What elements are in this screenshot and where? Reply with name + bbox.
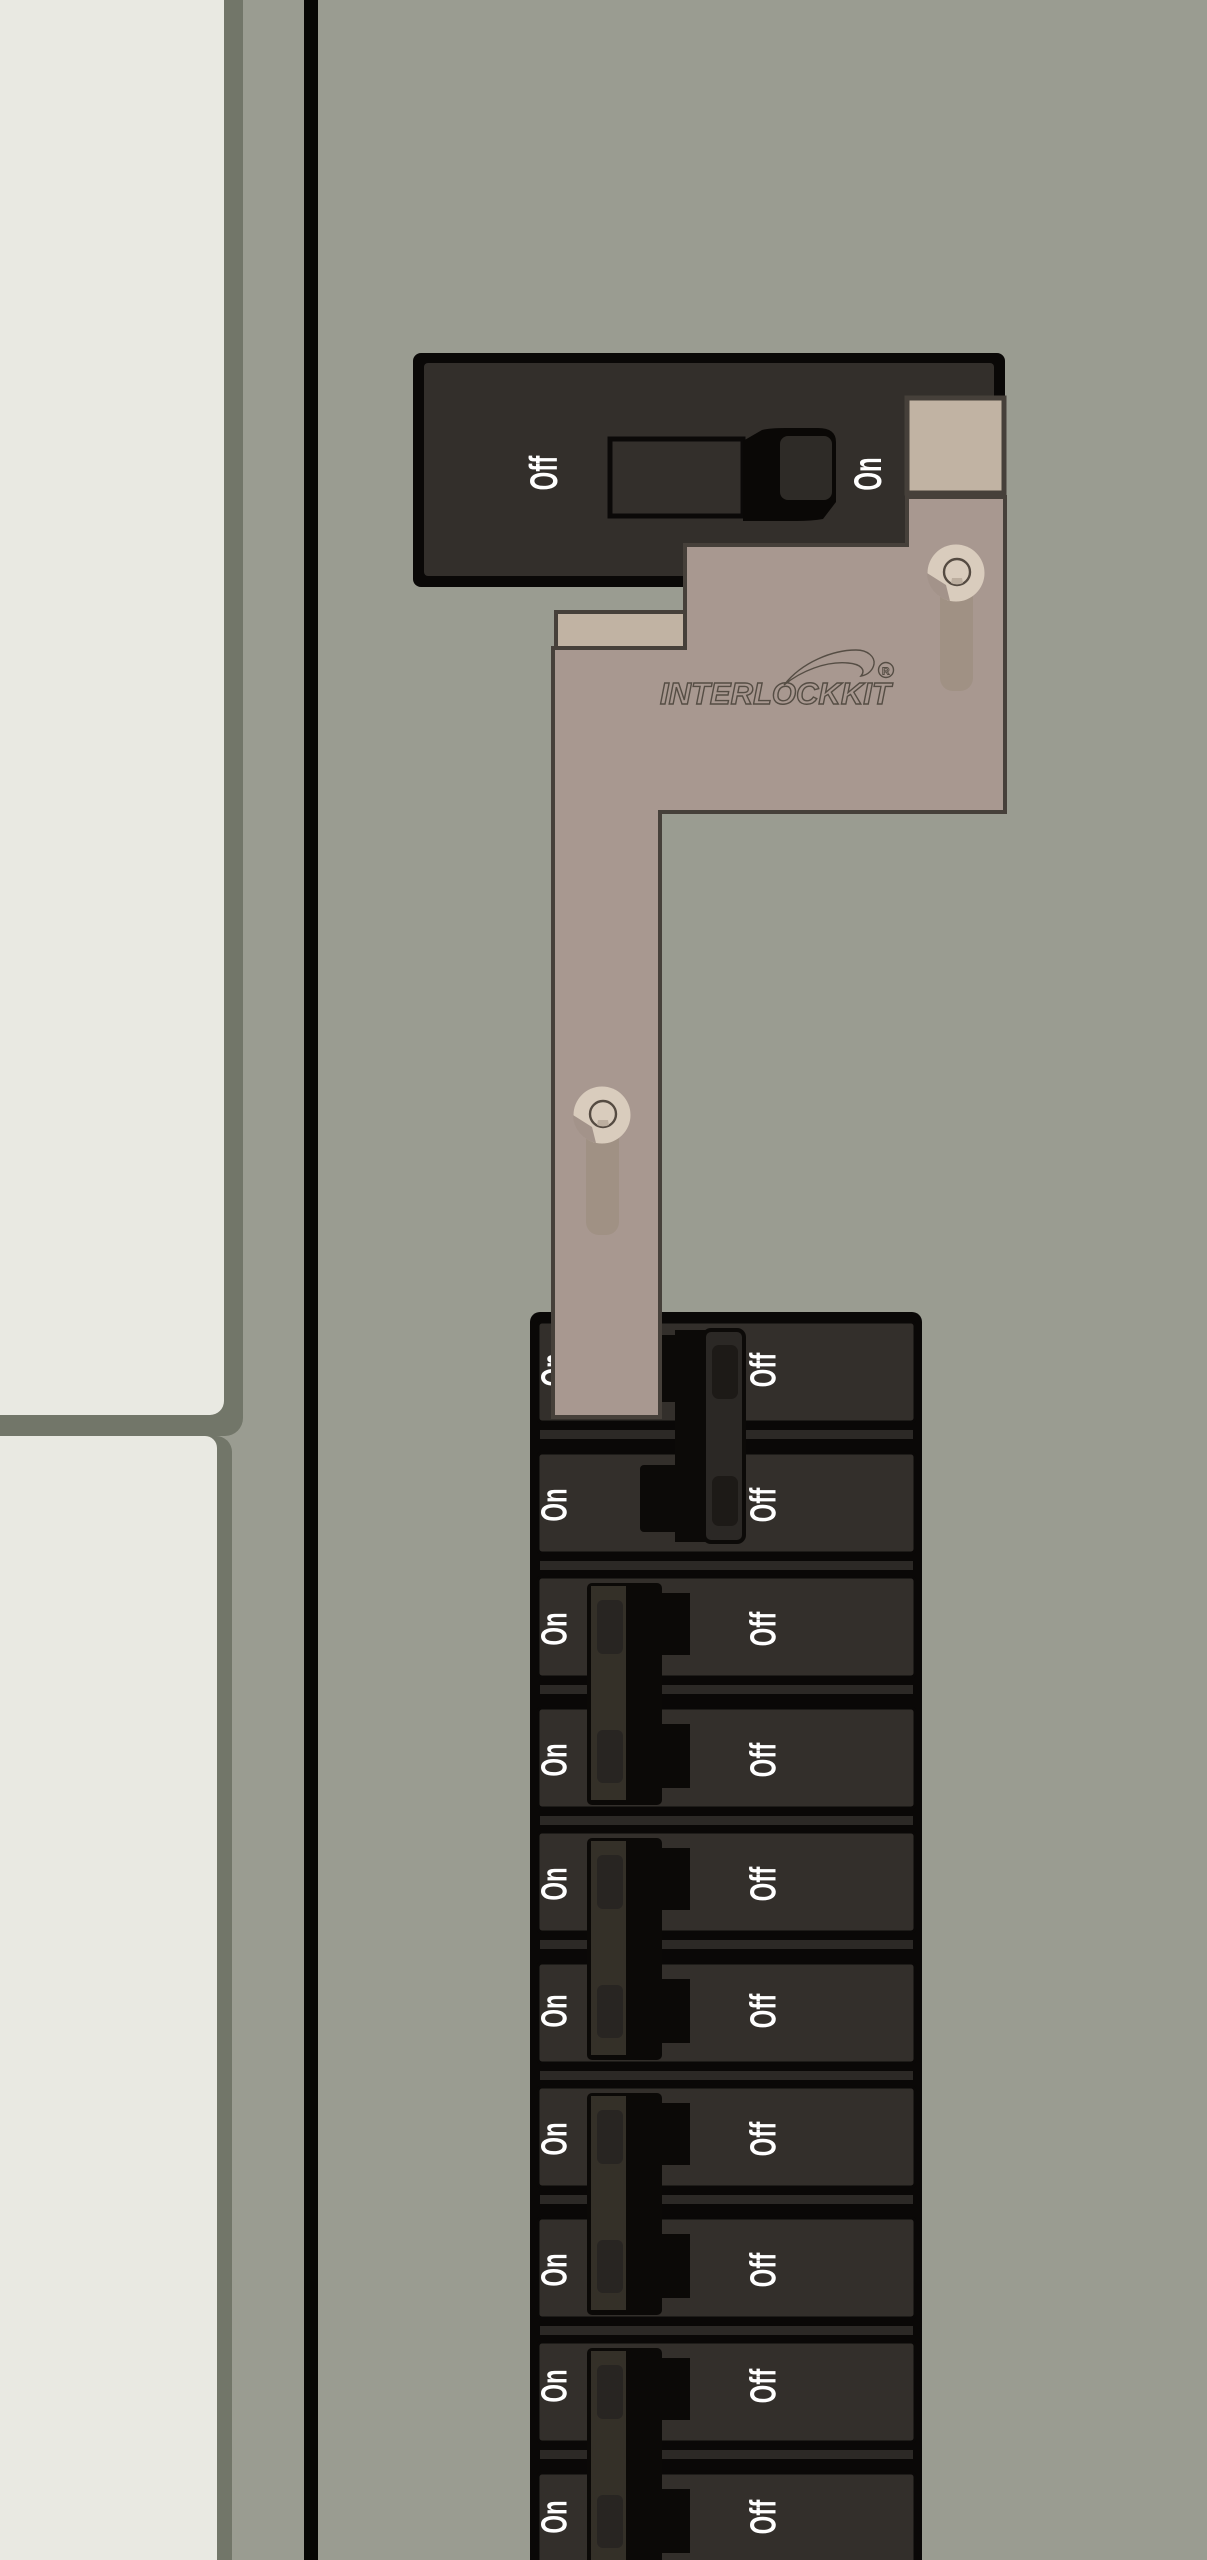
- svg-text:Off: Off: [742, 1993, 783, 2028]
- svg-text:Off: Off: [742, 1352, 783, 1387]
- svg-text:INTERLOCKKIT: INTERLOCKKIT: [660, 676, 894, 711]
- svg-text:Off: Off: [742, 1866, 783, 1901]
- svg-text:Off: Off: [742, 1742, 783, 1777]
- svg-text:On: On: [533, 2253, 574, 2286]
- svg-text:On: On: [533, 1612, 574, 1645]
- svg-text:On: On: [533, 2122, 574, 2155]
- svg-text:Off: Off: [742, 1611, 783, 1646]
- svg-text:Off: Off: [522, 456, 565, 491]
- svg-text:On: On: [533, 1488, 574, 1521]
- svg-text:Off: Off: [742, 2499, 783, 2534]
- svg-text:On: On: [533, 1867, 574, 1900]
- svg-text:On: On: [846, 457, 889, 490]
- svg-text:On: On: [533, 1743, 574, 1776]
- svg-text:On: On: [533, 2500, 574, 2533]
- svg-text:Off: Off: [742, 2252, 783, 2287]
- svg-text:Off: Off: [742, 2121, 783, 2156]
- svg-text:On: On: [533, 1994, 574, 2027]
- svg-text:On: On: [533, 2369, 574, 2402]
- svg-text:Off: Off: [742, 2368, 783, 2403]
- svg-text:Off: Off: [742, 1487, 783, 1522]
- svg-text:R: R: [882, 666, 890, 678]
